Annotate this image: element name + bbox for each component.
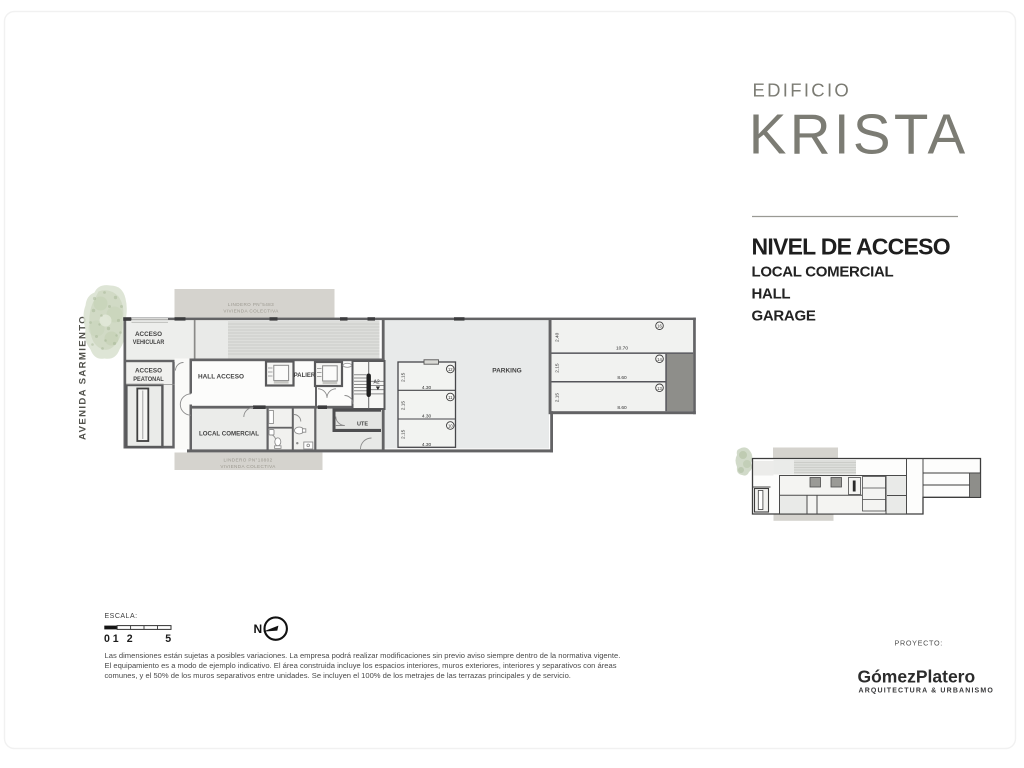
svg-text:4.30: 4.30	[422, 442, 432, 448]
svg-text:VIVIENDA COLECTIVA: VIVIENDA COLECTIVA	[220, 464, 276, 469]
svg-text:LINDERO PN°10802: LINDERO PN°10802	[223, 458, 272, 463]
svg-text:EDIFICIO: EDIFICIO	[753, 80, 852, 101]
svg-text:GARAGE: GARAGE	[752, 308, 816, 325]
svg-text:4.30: 4.30	[422, 413, 432, 419]
svg-text:2.40: 2.40	[555, 332, 561, 342]
svg-text:10.70: 10.70	[616, 346, 628, 352]
svg-text:PEATONAL: PEATONAL	[133, 376, 164, 383]
svg-text:LOCAL COMERCIAL: LOCAL COMERCIAL	[752, 264, 894, 281]
svg-text:UTE: UTE	[357, 422, 368, 428]
svg-text:2.15: 2.15	[401, 372, 407, 382]
svg-text:GómezPlatero: GómezPlatero	[858, 667, 976, 687]
svg-text:VEHICULAR: VEHICULAR	[133, 339, 165, 346]
svg-text:2.15: 2.15	[555, 363, 561, 373]
svg-text:HALL: HALL	[752, 286, 791, 303]
svg-text:ARQUITECTURA & URBANISMO: ARQUITECTURA & URBANISMO	[859, 688, 994, 695]
svg-text:Las dimensiones están sujetas: Las dimensiones están sujetas a posibles…	[105, 651, 621, 660]
svg-text:LINDERO PN°5483: LINDERO PN°5483	[228, 302, 274, 307]
svg-text:NIVEL DE ACCESO: NIVEL DE ACCESO	[752, 234, 950, 260]
svg-text:1: 1	[113, 633, 119, 645]
svg-text:ESCALA:: ESCALA:	[105, 613, 138, 620]
svg-text:N: N	[254, 622, 263, 636]
svg-text:ACCESO: ACCESO	[135, 368, 162, 375]
svg-text:2.15: 2.15	[555, 393, 561, 403]
svg-text:PALIER: PALIER	[294, 373, 316, 379]
svg-text:ACCESO: ACCESO	[135, 331, 162, 338]
svg-text:comunes, y el 50% de los muros: comunes, y el 50% de los muros separativ…	[105, 671, 571, 680]
svg-text:14: 14	[657, 357, 662, 362]
svg-text:VIVIENDA COLECTIVA: VIVIENDA COLECTIVA	[223, 309, 279, 314]
svg-text:11: 11	[448, 395, 453, 400]
svg-text:8.60: 8.60	[617, 405, 627, 411]
svg-text:4.30: 4.30	[422, 385, 432, 391]
svg-text:8.60: 8.60	[617, 375, 627, 381]
svg-text:KRISTA: KRISTA	[749, 103, 969, 166]
svg-text:13: 13	[657, 386, 662, 391]
svg-text:El equipamiento es a modo de e: El equipamiento es a modo de ejemplo ind…	[105, 661, 617, 670]
svg-text:PARKING: PARKING	[492, 368, 522, 375]
svg-text:PROYECTO:: PROYECTO:	[895, 639, 944, 648]
svg-text:HALL ACCESO: HALL ACCESO	[198, 374, 244, 381]
svg-text:12: 12	[448, 367, 453, 372]
svg-text:10: 10	[448, 424, 453, 429]
svg-text:0: 0	[104, 633, 110, 645]
svg-text:2: 2	[127, 633, 133, 645]
svg-text:2.15: 2.15	[401, 401, 407, 411]
svg-text:LOCAL COMERCIAL: LOCAL COMERCIAL	[199, 431, 259, 438]
svg-text:5: 5	[165, 633, 171, 645]
svg-text:16: 16	[657, 324, 662, 329]
svg-text:2.15: 2.15	[401, 429, 407, 439]
svg-text:A2: A2	[374, 380, 380, 386]
